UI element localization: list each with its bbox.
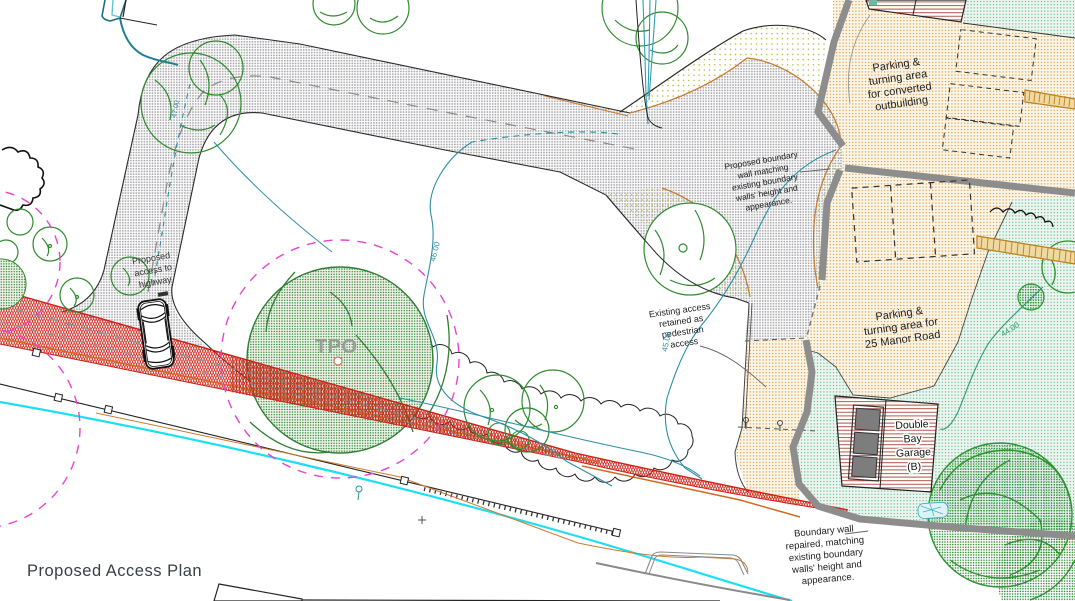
svg-text:Bay: Bay xyxy=(903,433,922,446)
svg-text:Double: Double xyxy=(895,418,929,432)
svg-text:(B): (B) xyxy=(907,461,922,474)
svg-text:Proposed Access Plan: Proposed Access Plan xyxy=(27,562,202,580)
svg-text:TPO: TPO xyxy=(315,336,358,358)
svg-text:Garage: Garage xyxy=(896,446,932,460)
